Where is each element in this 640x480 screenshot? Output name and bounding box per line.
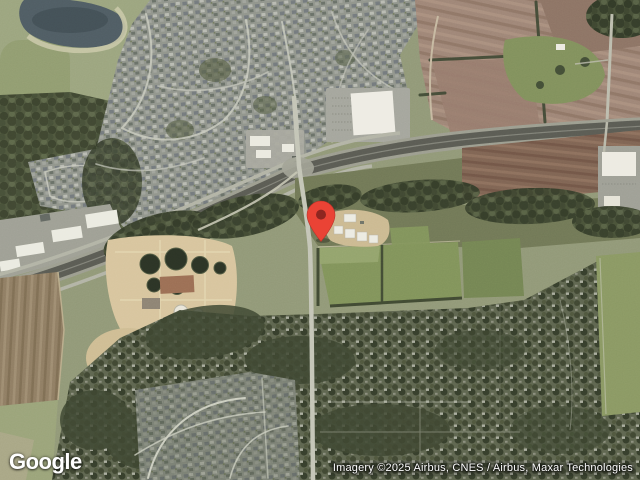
pin-dot [316, 210, 326, 220]
google-logo[interactable]: Google [9, 449, 82, 475]
map-canvas[interactable]: Google Imagery ©2025 Airbus, CNES / Airb… [0, 0, 640, 480]
pin-body [307, 201, 335, 242]
red-location-pin[interactable] [306, 200, 336, 243]
map-attribution: Imagery ©2025 Airbus, CNES / Airbus, Max… [330, 461, 636, 476]
